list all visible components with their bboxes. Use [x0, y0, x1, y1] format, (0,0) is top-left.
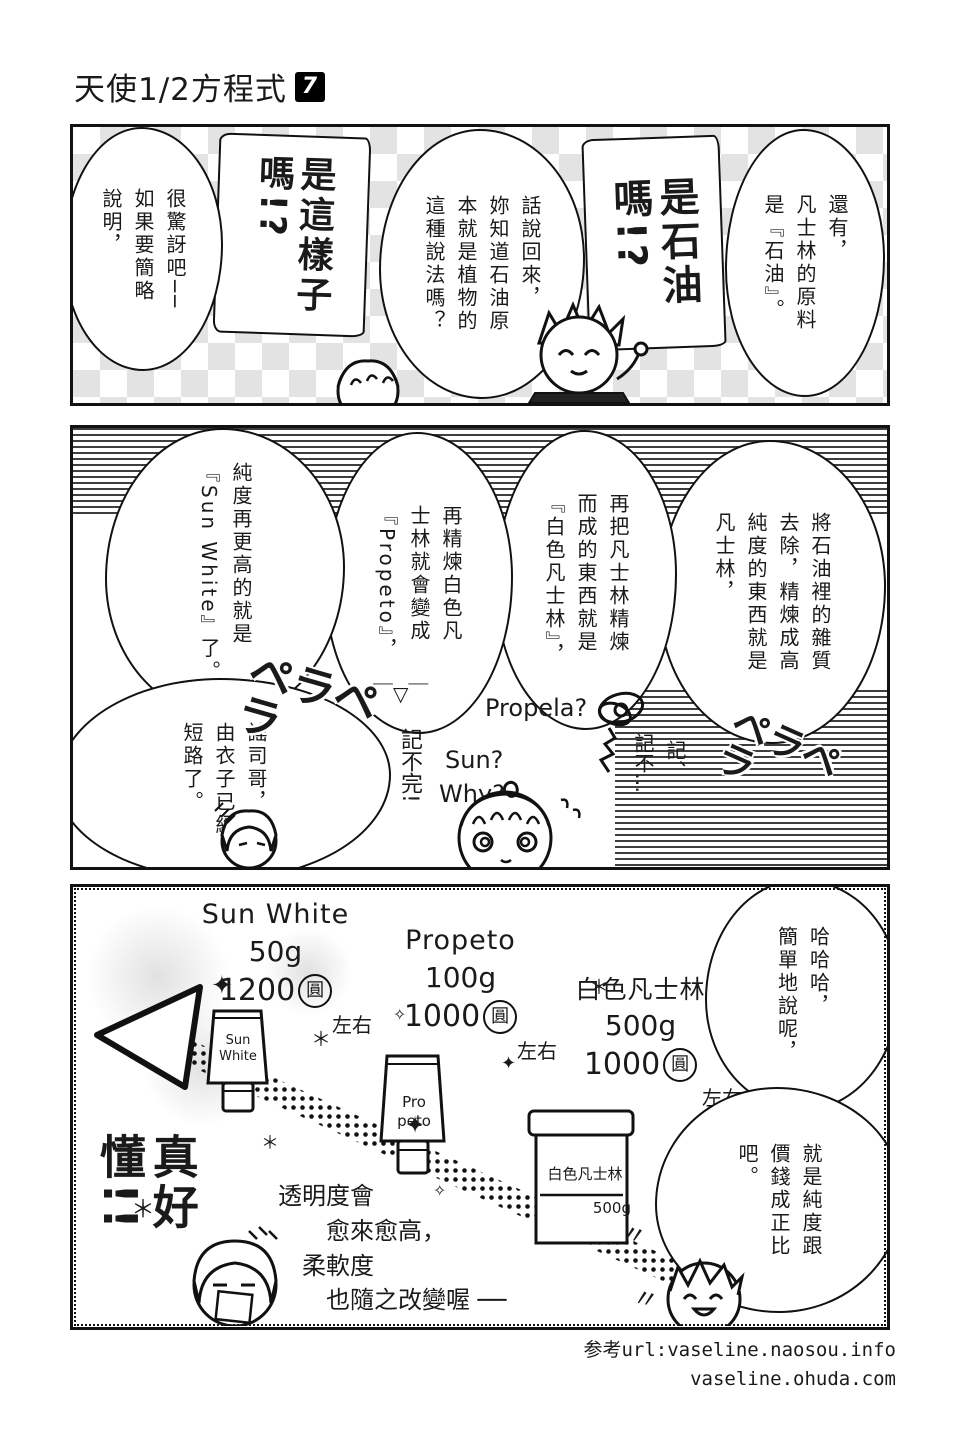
- tube-label-sun-white: Sun White: [213, 1033, 263, 1066]
- handwritten-transparency-note: 透明度會 愈來愈高， 柔軟度 也隨之改變喔 ──: [278, 1179, 618, 1318]
- speech-text: 就是純度跟 價錢成正比 吧。: [731, 1143, 827, 1258]
- shout-bubble-is-that-so: 是這樣子 嗎!?: [213, 132, 372, 337]
- sparkle-icon: ✧: [393, 1007, 406, 1023]
- product-price: 1000: [584, 1047, 660, 1082]
- sparkle-icon: ✦: [211, 973, 233, 999]
- handwritten-propela: Propela?: [485, 694, 587, 722]
- volume-badge: 7: [295, 72, 325, 102]
- character-girl-dizzy: [421, 770, 596, 867]
- manga-page: 天使1/2方程式 7 還有， 凡士林的原料 是『石油』。 是石油 嗎!? 話說回…: [0, 0, 960, 1440]
- speech-text: 還有， 凡士林的原料 是『石油』。: [757, 194, 853, 332]
- yen-circle-icon: 圓: [298, 974, 332, 1008]
- speech-bubble-hahaha: 哈哈哈， 簡單地說呢，: [705, 884, 890, 1111]
- speech-bubble-refine-2: 再把凡士林精煉 而成的東西就是 『白色凡士林』，: [495, 430, 677, 730]
- series-title: 天使1/2方程式: [74, 64, 287, 109]
- confusion-scribble-icon: [585, 686, 647, 778]
- speech-bubble-vaseline-origin: 還有， 凡士林的原料 是『石油』。: [725, 129, 885, 397]
- page-header: 天使1/2方程式 7: [74, 64, 325, 109]
- speech-text: 很驚訝吧── 如果要簡略 說明，: [95, 188, 191, 310]
- character-girl-small-head: [325, 351, 411, 403]
- character-boy-explaining: [521, 293, 671, 403]
- yen-circle-icon: 圓: [483, 1000, 517, 1034]
- character-girl-deadpan: [175, 1223, 293, 1326]
- product-name: Propeto: [358, 923, 563, 959]
- sparkle-icon: ＊: [589, 977, 609, 997]
- product-name: Sun White: [173, 897, 378, 933]
- reference-url-line1: 参考url:vaseline.naosou.info: [583, 1336, 896, 1365]
- product-price: 1000: [404, 999, 480, 1034]
- character-girl-corner: [211, 793, 283, 867]
- product-weight: 50g: [173, 933, 378, 971]
- panel-1: 還有， 凡士林的原料 是『石油』。 是石油 嗎!? 話說回來， 妳知道石油原 本…: [70, 124, 890, 406]
- speech-text: 再把凡士林精煉 而成的東西就是 『白色凡士林』，: [538, 493, 634, 667]
- shout-text: 是這樣子 嗎!?: [248, 154, 336, 317]
- sparkle-icon: ✦: [405, 1113, 425, 1137]
- panel-2: 將石油裡的雜質 去除，精煉成高 純度的東西就是 凡士林， 再把凡士林精煉 而成的…: [70, 425, 890, 870]
- shout-text: 是石油 嗎!?: [606, 175, 703, 310]
- speech-text: 純度再更高的就是 『Sun White』了。: [193, 462, 257, 684]
- character-boy-laughing: [658, 1253, 750, 1326]
- sparkle-icon: ✦: [501, 1055, 516, 1073]
- speech-text: 將石油裡的雜質 去除，精煉成高 純度的東西就是 凡士林，: [708, 512, 836, 673]
- reference-urls: 参考url:vaseline.naosou.info vaseline.ohud…: [583, 1336, 896, 1395]
- sparkle-icon: ＊: [311, 1029, 331, 1049]
- speech-text: 哈哈哈， 簡單地說呢，: [771, 926, 835, 1064]
- yen-circle-icon: 圓: [663, 1048, 697, 1082]
- speech-bubble-refine-1: 將石油裡的雜質 去除，精煉成高 純度的東西就是 凡士林，: [658, 440, 886, 744]
- panel-3: Sun White 50g 1200圓 左右 Sun White Propeto…: [70, 884, 890, 1330]
- sparkle-icon: ＊: [261, 1135, 279, 1153]
- reference-url-line2: vaseline.ohuda.com: [583, 1365, 896, 1394]
- speech-text: 再精煉白色凡 士林就會變成 『Propeto』，: [371, 505, 467, 662]
- speech-bubble-surprised: 很驚訝吧── 如果要簡略 說明，: [70, 127, 223, 371]
- handwritten-ki-2: 記、: [661, 740, 690, 780]
